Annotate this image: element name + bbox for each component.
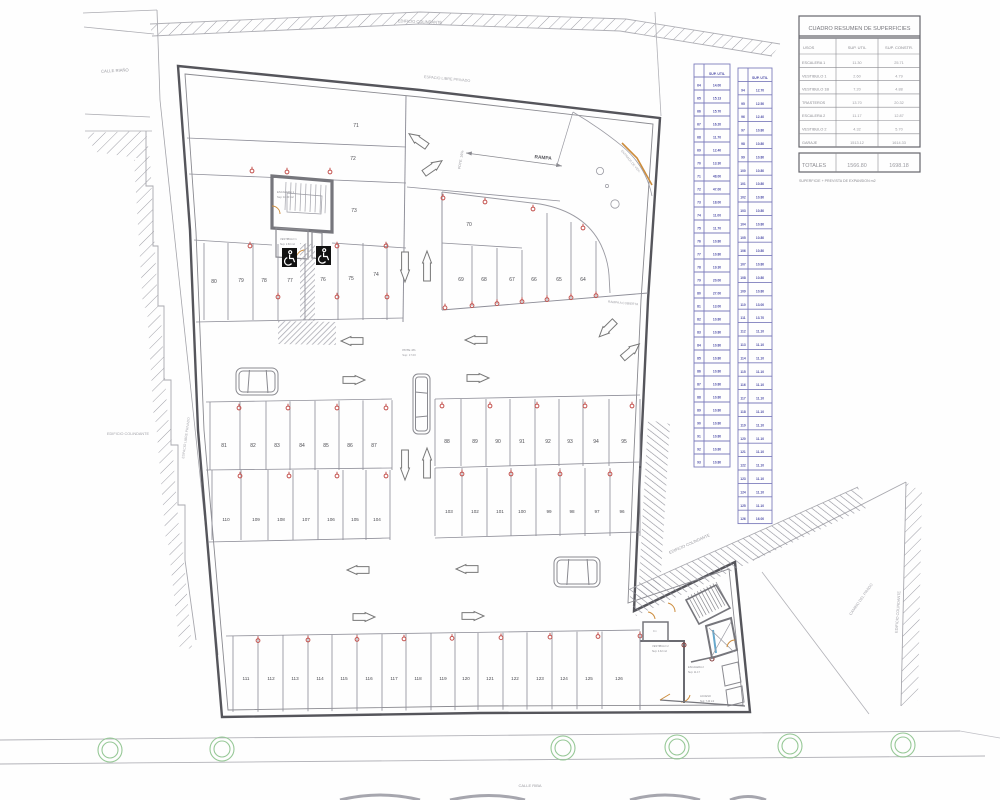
svg-text:10.80: 10.80 (756, 263, 764, 267)
svg-text:104: 104 (740, 222, 746, 226)
svg-text:13.70: 13.70 (756, 316, 764, 320)
svg-text:10.80: 10.80 (713, 357, 721, 361)
svg-text:48.00: 48.00 (713, 175, 721, 179)
svg-text:103: 103 (740, 209, 746, 213)
svg-text:67: 67 (697, 123, 701, 127)
svg-text:ACCESO: ACCESO (700, 694, 711, 698)
svg-text:94: 94 (741, 88, 745, 92)
svg-text:10.80: 10.80 (756, 249, 764, 253)
svg-text:74: 74 (373, 272, 379, 278)
svg-text:74: 74 (697, 214, 701, 218)
svg-text:64: 64 (580, 277, 586, 283)
svg-text:75: 75 (697, 227, 701, 231)
svg-text:101: 101 (740, 182, 746, 186)
svg-text:11.10: 11.10 (756, 423, 764, 427)
svg-text:SUPERFICIE + PREVISTA DE EXPAN: SUPERFICIE + PREVISTA DE EXPANSION m2 (799, 179, 876, 183)
svg-text:64: 64 (697, 84, 701, 88)
svg-text:27.00: 27.00 (713, 292, 721, 296)
svg-text:104: 104 (373, 517, 381, 522)
svg-text:67: 67 (509, 277, 515, 283)
svg-text:Sup: 4.32 m2: Sup: 4.32 m2 (652, 650, 667, 653)
svg-text:125: 125 (585, 676, 593, 681)
svg-text:69: 69 (697, 149, 701, 153)
svg-text:1698.18: 1698.18 (889, 163, 909, 169)
svg-text:80: 80 (211, 279, 217, 285)
svg-text:4.88: 4.88 (895, 88, 902, 92)
svg-text:15.13: 15.13 (713, 97, 721, 101)
svg-text:125: 125 (740, 504, 746, 508)
svg-text:89: 89 (472, 439, 478, 445)
svg-text:87: 87 (371, 443, 377, 449)
svg-text:10.80: 10.80 (756, 276, 764, 280)
svg-text:11.10: 11.10 (756, 464, 764, 468)
svg-text:11.30: 11.30 (852, 61, 861, 65)
svg-text:10.80: 10.80 (756, 289, 764, 293)
svg-text:VESTIBULO 2: VESTIBULO 2 (652, 644, 669, 648)
svg-text:79: 79 (238, 278, 244, 284)
svg-text:10.80: 10.80 (713, 344, 721, 348)
svg-text:18.00: 18.00 (713, 201, 721, 205)
svg-text:94: 94 (593, 439, 599, 445)
svg-text:118: 118 (740, 410, 745, 414)
svg-text:10.80: 10.80 (756, 222, 764, 226)
svg-text:96: 96 (741, 115, 745, 119)
svg-text:95: 95 (741, 102, 745, 106)
svg-text:81: 81 (221, 443, 227, 449)
svg-text:84: 84 (697, 344, 701, 348)
svg-text:75: 75 (348, 276, 354, 282)
svg-text:ESCALERA 2: ESCALERA 2 (802, 114, 825, 118)
svg-text:86: 86 (347, 443, 353, 449)
svg-text:84: 84 (299, 443, 305, 449)
svg-text:124: 124 (740, 490, 746, 494)
svg-text:11.10: 11.10 (756, 343, 764, 347)
svg-text:101: 101 (496, 509, 504, 514)
svg-text:123: 123 (536, 676, 544, 681)
svg-text:1614.33: 1614.33 (892, 141, 906, 145)
svg-text:10.80: 10.80 (713, 318, 721, 322)
svg-text:Sup: 11.30 m2: Sup: 11.30 m2 (277, 195, 294, 199)
svg-text:117: 117 (390, 676, 398, 681)
svg-text:USOS: USOS (803, 45, 815, 50)
svg-text:11.10: 11.10 (756, 370, 764, 374)
svg-text:76: 76 (697, 240, 701, 244)
svg-text:12.40: 12.40 (756, 115, 764, 119)
svg-text:TRASTEROS: TRASTEROS (802, 101, 826, 105)
svg-text:93: 93 (567, 439, 573, 445)
svg-text:78: 78 (261, 278, 267, 284)
svg-text:C.I.: C.I. (653, 629, 657, 633)
svg-text:83: 83 (274, 443, 280, 449)
svg-text:ESCALERA 1: ESCALERA 1 (802, 61, 825, 65)
svg-text:112: 112 (740, 330, 745, 334)
svg-text:10.80: 10.80 (713, 253, 721, 257)
svg-text:16.20: 16.20 (713, 123, 721, 127)
svg-text:110: 110 (222, 517, 230, 522)
svg-text:105: 105 (740, 236, 746, 240)
svg-text:15.70: 15.70 (713, 110, 721, 114)
svg-text:85: 85 (697, 357, 701, 361)
svg-text:CUADRO RESUMEN DE SUPERFICI: CUADRO RESUMEN DE SUPERFICIES (809, 26, 911, 32)
svg-text:11.00: 11.00 (713, 214, 721, 218)
svg-text:106: 106 (327, 517, 335, 522)
svg-text:10.80: 10.80 (713, 435, 721, 439)
svg-text:88: 88 (697, 396, 701, 400)
svg-text:10.80: 10.80 (713, 422, 721, 426)
svg-text:11.10: 11.10 (756, 330, 764, 334)
svg-text:80: 80 (697, 292, 701, 296)
svg-text:EDIFICIO COLINDANTE: EDIFICIO COLINDANTE (107, 432, 149, 436)
svg-text:90: 90 (495, 439, 501, 445)
svg-text:118: 118 (414, 676, 422, 681)
svg-text:65: 65 (697, 97, 701, 101)
svg-text:109: 109 (740, 289, 746, 293)
svg-text:77: 77 (287, 278, 293, 284)
svg-text:2.60: 2.60 (853, 74, 860, 78)
svg-text:105: 105 (351, 517, 359, 522)
svg-text:115: 115 (340, 676, 348, 681)
svg-text:GARAJE: GARAJE (802, 141, 818, 145)
svg-text:116: 116 (740, 383, 745, 387)
svg-text:66: 66 (531, 277, 537, 283)
svg-text:13.30: 13.30 (713, 162, 721, 166)
svg-text:20.00: 20.00 (713, 279, 721, 283)
svg-text:108: 108 (740, 276, 746, 280)
svg-text:20.32: 20.32 (894, 101, 904, 105)
svg-text:72: 72 (350, 156, 356, 162)
svg-text:99: 99 (741, 155, 745, 159)
svg-text:117: 117 (740, 397, 745, 401)
svg-text:126: 126 (740, 517, 746, 521)
svg-text:112: 112 (267, 676, 275, 681)
svg-text:Sup: 11.17: Sup: 11.17 (688, 671, 701, 674)
svg-text:109: 109 (252, 517, 260, 522)
svg-text:102: 102 (471, 509, 479, 514)
svg-text:11.10: 11.10 (756, 504, 764, 508)
svg-text:119: 119 (740, 423, 745, 427)
svg-text:91: 91 (697, 435, 701, 439)
svg-text:SUP. UTIL: SUP. UTIL (752, 76, 768, 80)
svg-text:106: 106 (740, 249, 746, 253)
svg-text:10.80: 10.80 (756, 142, 764, 146)
svg-text:10.80: 10.80 (756, 182, 764, 186)
svg-text:ESCALERA 2: ESCALERA 2 (688, 665, 704, 669)
svg-text:11.10: 11.10 (756, 490, 764, 494)
svg-text:107: 107 (302, 517, 310, 522)
svg-text:1566.80: 1566.80 (847, 163, 867, 169)
svg-text:79: 79 (697, 279, 701, 283)
svg-text:70: 70 (466, 222, 472, 228)
svg-text:10.80: 10.80 (756, 129, 764, 133)
svg-text:11.10: 11.10 (756, 383, 764, 387)
svg-text:87: 87 (697, 383, 701, 387)
svg-text:10.80: 10.80 (756, 209, 764, 213)
svg-text:120: 120 (462, 676, 470, 681)
svg-text:98: 98 (569, 509, 575, 514)
svg-text:78: 78 (697, 266, 701, 270)
svg-text:72: 72 (697, 188, 701, 192)
svg-text:4.32: 4.32 (853, 128, 860, 132)
svg-text:121: 121 (486, 676, 494, 681)
svg-text:98: 98 (741, 142, 745, 146)
svg-text:25.71: 25.71 (894, 61, 904, 65)
svg-text:10.80: 10.80 (713, 396, 721, 400)
svg-text:124: 124 (560, 676, 568, 681)
svg-text:97: 97 (594, 509, 600, 514)
svg-text:73: 73 (697, 201, 701, 205)
svg-text:103: 103 (445, 509, 453, 514)
svg-text:Sup: 17.00: Sup: 17.00 (402, 353, 416, 357)
svg-text:93: 93 (697, 461, 701, 465)
svg-text:71: 71 (697, 175, 701, 179)
svg-text:11.70: 11.70 (713, 136, 721, 140)
svg-text:82: 82 (697, 318, 701, 322)
svg-text:10.80: 10.80 (713, 448, 721, 452)
svg-text:11.10: 11.10 (756, 477, 764, 481)
svg-text:66: 66 (697, 110, 701, 114)
svg-text:5.70: 5.70 (895, 128, 902, 132)
svg-text:16.00: 16.00 (756, 517, 764, 521)
svg-text:89: 89 (697, 409, 701, 413)
svg-text:121: 121 (740, 450, 746, 454)
svg-text:96: 96 (619, 509, 625, 514)
svg-text:126: 126 (615, 676, 623, 681)
svg-text:90: 90 (697, 422, 701, 426)
svg-text:VESTIBULO 1: VESTIBULO 1 (802, 74, 826, 78)
svg-text:11.70: 11.70 (713, 227, 721, 231)
svg-text:10.80: 10.80 (756, 196, 764, 200)
svg-text:68: 68 (697, 136, 701, 140)
svg-text:122: 122 (511, 676, 519, 681)
svg-text:10.80: 10.80 (756, 155, 764, 159)
svg-text:97: 97 (741, 129, 745, 133)
svg-text:110: 110 (740, 303, 745, 307)
svg-text:91: 91 (519, 439, 525, 445)
svg-text:SUP. UTIL: SUP. UTIL (848, 45, 867, 50)
svg-text:12.87: 12.87 (894, 114, 904, 118)
svg-text:123: 123 (740, 477, 746, 481)
svg-text:PDTE 4%: PDTE 4% (402, 348, 416, 352)
svg-text:113: 113 (291, 676, 299, 681)
svg-text:100: 100 (518, 509, 526, 514)
svg-text:100: 100 (740, 169, 746, 173)
svg-text:14.00: 14.00 (713, 84, 721, 88)
svg-text:13.00: 13.00 (713, 305, 721, 309)
svg-text:107: 107 (740, 263, 746, 267)
svg-text:ESCALERA 1: ESCALERA 1 (277, 190, 295, 194)
svg-text:11.17: 11.17 (852, 114, 861, 118)
svg-text:4.79: 4.79 (895, 74, 902, 78)
svg-text:13.70: 13.70 (852, 101, 862, 105)
svg-text:108: 108 (277, 517, 285, 522)
svg-text:119: 119 (439, 676, 447, 681)
svg-text:10.80: 10.80 (713, 461, 721, 465)
svg-text:92: 92 (545, 439, 551, 445)
svg-text:113: 113 (740, 343, 745, 347)
svg-text:102: 102 (740, 196, 746, 200)
svg-text:111: 111 (740, 316, 745, 320)
svg-text:88: 88 (444, 439, 450, 445)
svg-text:10.80: 10.80 (756, 169, 764, 173)
svg-text:69: 69 (458, 277, 464, 283)
svg-text:10.80: 10.80 (713, 370, 721, 374)
svg-text:73: 73 (351, 208, 357, 214)
svg-text:VESTIBULO 2: VESTIBULO 2 (802, 128, 826, 132)
svg-text:83: 83 (697, 331, 701, 335)
svg-text:19.30: 19.30 (713, 266, 721, 270)
svg-text:1513.12: 1513.12 (850, 141, 864, 145)
svg-text:SUP. CONSTR.: SUP. CONSTR. (885, 45, 913, 50)
svg-text:116: 116 (365, 676, 373, 681)
svg-text:10.80: 10.80 (713, 409, 721, 413)
svg-text:115: 115 (740, 370, 745, 374)
svg-text:10.80: 10.80 (756, 236, 764, 240)
svg-text:12.40: 12.40 (713, 149, 721, 153)
svg-text:10.80: 10.80 (713, 240, 721, 244)
svg-text:11.10: 11.10 (756, 410, 764, 414)
svg-text:68: 68 (481, 277, 487, 283)
svg-text:99: 99 (546, 509, 552, 514)
svg-text:120: 120 (740, 437, 746, 441)
svg-text:VESTIBULO 1: VESTIBULO 1 (280, 237, 297, 241)
svg-text:12.70: 12.70 (756, 88, 764, 92)
svg-text:114: 114 (740, 356, 745, 360)
svg-text:11.10: 11.10 (756, 450, 764, 454)
svg-text:77: 77 (697, 253, 701, 257)
svg-text:12.50: 12.50 (756, 102, 764, 106)
svg-text:10.80: 10.80 (713, 331, 721, 335)
svg-text:47.00: 47.00 (713, 188, 721, 192)
svg-text:11.10: 11.10 (756, 356, 764, 360)
svg-text:70: 70 (697, 162, 701, 166)
svg-text:Sup: 2.60 m2: Sup: 2.60 m2 (280, 243, 295, 246)
svg-text:7.20: 7.20 (853, 88, 860, 92)
svg-text:76: 76 (320, 277, 326, 283)
svg-text:95: 95 (621, 439, 627, 445)
svg-text:VESTIBULO 1B: VESTIBULO 1B (802, 88, 829, 92)
svg-text:122: 122 (740, 464, 746, 468)
svg-text:86: 86 (697, 370, 701, 374)
svg-text:114: 114 (316, 676, 324, 681)
svg-text:81: 81 (697, 305, 701, 309)
svg-text:65: 65 (556, 277, 562, 283)
svg-text:92: 92 (697, 448, 701, 452)
svg-text:71: 71 (353, 123, 359, 129)
svg-text:11.10: 11.10 (756, 437, 764, 441)
svg-text:SUP. UTIL: SUP. UTIL (709, 72, 725, 76)
svg-text:111: 111 (243, 676, 250, 681)
svg-text:85: 85 (323, 443, 329, 449)
svg-text:82: 82 (250, 443, 256, 449)
svg-text:11.10: 11.10 (756, 397, 764, 401)
svg-text:CALLE RIBA: CALLE RIBA (518, 783, 541, 788)
svg-text:TOTALES: TOTALES (802, 163, 826, 169)
svg-text:13.00: 13.00 (756, 303, 764, 307)
svg-text:10.80: 10.80 (713, 383, 721, 387)
